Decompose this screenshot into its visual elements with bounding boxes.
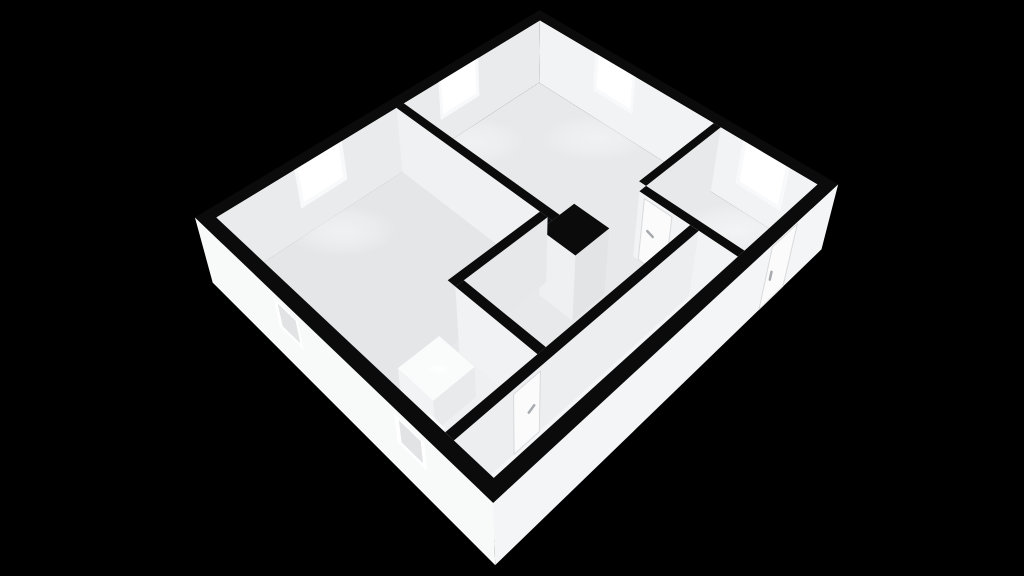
front-door-handle <box>770 272 772 280</box>
floorplan-geometry <box>195 10 838 565</box>
floorplan-3d-view[interactable] <box>0 0 1024 576</box>
render-viewport <box>0 0 1024 576</box>
bathroom-sink <box>427 363 451 375</box>
